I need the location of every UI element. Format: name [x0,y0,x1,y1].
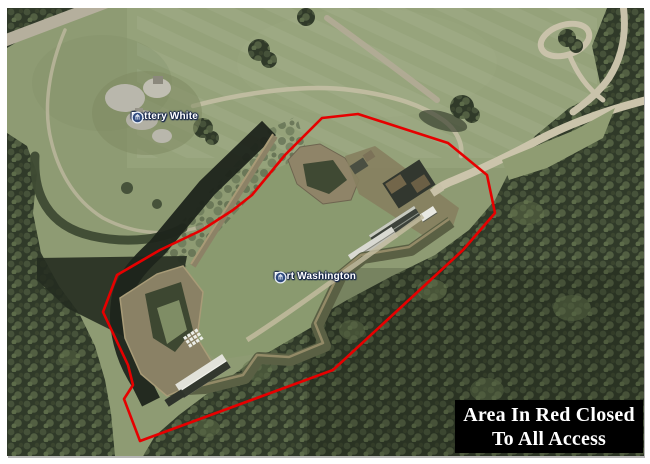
aerial-backdrop [7,8,644,456]
map-marker-battery-white: Battery White [131,111,198,122]
historic-site-icon [274,271,287,284]
satellite-image: Battery White Fort Washington Area In Re… [7,8,644,456]
page: { "canvas": {"width": 650, "height": 464… [0,0,650,464]
closure-notice-line2: To All Access [455,427,643,451]
historic-site-icon [131,111,144,124]
closure-notice: Area In Red Closed To All Access [455,400,643,453]
map-marker-fort-washington: Fort Washington [274,271,356,282]
closure-notice-line1: Area In Red Closed [455,403,643,427]
